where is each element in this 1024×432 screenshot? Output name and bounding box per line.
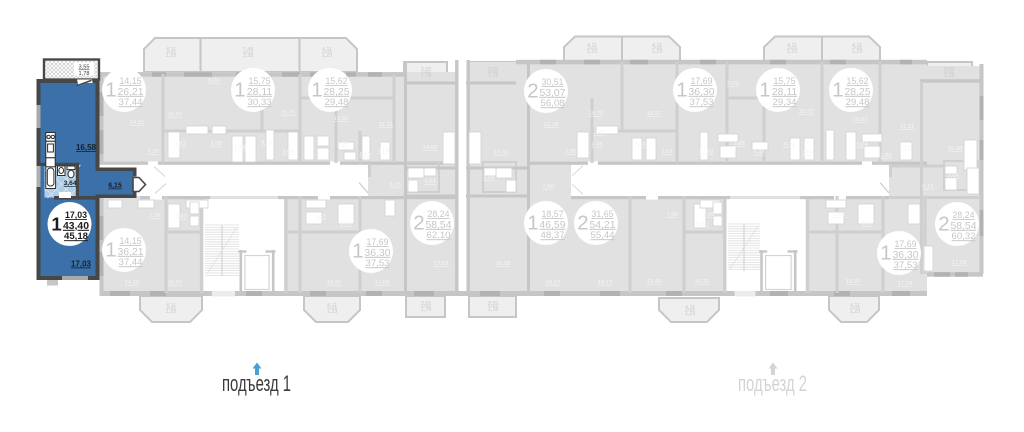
svg-text:3,64: 3,64: [947, 173, 959, 179]
svg-text:3,64: 3,64: [64, 180, 77, 187]
svg-text:10,97: 10,97: [327, 280, 342, 286]
svg-text:5,04: 5,04: [856, 142, 868, 148]
svg-text:17,69: 17,69: [894, 239, 916, 249]
svg-text:4,11: 4,11: [327, 303, 337, 309]
svg-text:15,75: 15,75: [799, 109, 814, 115]
svg-text:1: 1: [105, 239, 116, 262]
svg-text:1,85: 1,85: [880, 153, 892, 159]
svg-text:10,97: 10,97: [168, 280, 183, 286]
svg-text:1,78: 1,78: [944, 73, 955, 79]
svg-text:3,81: 3,81: [861, 221, 872, 227]
svg-text:37,44: 37,44: [118, 97, 143, 108]
svg-text:1,23: 1,23: [322, 53, 333, 59]
svg-text:1,23: 1,23: [685, 311, 696, 317]
svg-text:28,25: 28,25: [323, 87, 349, 98]
svg-text:1,40: 1,40: [696, 222, 708, 228]
svg-text:10,97: 10,97: [168, 112, 183, 118]
svg-text:4,11: 4,11: [166, 47, 176, 53]
svg-text:37,53: 37,53: [893, 260, 917, 271]
svg-text:1,78: 1,78: [421, 307, 432, 313]
svg-text:1,23: 1,23: [787, 49, 798, 55]
svg-text:3,88: 3,88: [733, 141, 745, 147]
svg-text:10,97: 10,97: [846, 279, 861, 285]
svg-text:36,30: 36,30: [688, 87, 714, 98]
svg-text:53,07: 53,07: [539, 88, 565, 99]
svg-text:3,55: 3,55: [488, 301, 499, 307]
svg-text:1: 1: [880, 242, 891, 265]
svg-text:60,32: 60,32: [951, 231, 975, 242]
svg-text:37,44: 37,44: [118, 257, 143, 268]
svg-text:2,08: 2,08: [899, 145, 911, 151]
svg-text:7,96: 7,96: [666, 212, 678, 218]
svg-text:17,03: 17,03: [494, 150, 509, 156]
svg-text:2,08: 2,08: [378, 148, 390, 154]
svg-text:18,17: 18,17: [598, 280, 613, 286]
svg-text:1,23: 1,23: [166, 53, 177, 59]
svg-text:55,44: 55,44: [590, 230, 615, 241]
svg-text:1: 1: [759, 79, 770, 102]
svg-text:36,30: 36,30: [364, 248, 390, 259]
svg-text:7,80: 7,80: [542, 184, 554, 190]
svg-text:16,58: 16,58: [948, 146, 963, 152]
svg-text:8,00: 8,00: [208, 78, 220, 84]
svg-text:3,83: 3,83: [833, 212, 845, 218]
svg-text:3,55: 3,55: [944, 67, 955, 73]
svg-text:10,75: 10,75: [695, 279, 710, 285]
svg-text:17,69: 17,69: [375, 280, 390, 286]
svg-text:1,23: 1,23: [652, 49, 663, 55]
svg-text:16,58: 16,58: [496, 261, 511, 267]
svg-text:3,64: 3,64: [424, 179, 436, 185]
svg-text:1: 1: [51, 214, 61, 235]
svg-text:26,21: 26,21: [117, 87, 143, 98]
svg-text:7,96: 7,96: [565, 149, 577, 155]
svg-text:3,83: 3,83: [174, 141, 186, 147]
svg-text:1,78: 1,78: [79, 71, 90, 77]
svg-text:3,83: 3,83: [634, 142, 646, 148]
svg-text:1,23: 1,23: [327, 309, 338, 315]
svg-text:15,75: 15,75: [248, 76, 270, 86]
svg-text:31,65: 31,65: [591, 209, 613, 219]
svg-text:1: 1: [234, 79, 245, 102]
svg-text:6,15: 6,15: [108, 183, 122, 190]
svg-text:16,58: 16,58: [76, 143, 97, 152]
svg-text:4,11: 4,11: [787, 43, 797, 49]
svg-text:30,33: 30,33: [247, 97, 271, 108]
svg-text:1,23: 1,23: [166, 309, 177, 315]
svg-text:10,75: 10,75: [589, 111, 604, 117]
svg-text:1: 1: [105, 79, 116, 102]
svg-text:18,57: 18,57: [546, 280, 561, 286]
svg-text:36,21: 36,21: [117, 247, 143, 258]
svg-text:2,45: 2,45: [591, 142, 603, 148]
svg-text:43,40: 43,40: [63, 221, 89, 232]
svg-text:17,69: 17,69: [690, 76, 712, 86]
svg-text:28,11: 28,11: [772, 87, 797, 98]
svg-text:7,26: 7,26: [147, 149, 159, 155]
svg-text:14,15: 14,15: [125, 280, 140, 286]
svg-text:5,04: 5,04: [337, 141, 349, 147]
svg-text:56,08: 56,08: [540, 98, 564, 109]
svg-text:3,55: 3,55: [79, 65, 90, 71]
svg-text:1: 1: [527, 212, 538, 235]
svg-text:1,85: 1,85: [359, 152, 371, 158]
svg-text:62,10: 62,10: [426, 230, 450, 241]
svg-text:4,11: 4,11: [852, 43, 862, 49]
svg-text:3,01: 3,01: [661, 149, 672, 155]
svg-text:17,69: 17,69: [898, 281, 913, 287]
svg-text:3,64: 3,64: [483, 175, 495, 181]
svg-text:30,51: 30,51: [541, 77, 563, 87]
svg-text:15,62: 15,62: [325, 76, 347, 86]
svg-text:29,48: 29,48: [324, 97, 348, 108]
svg-text:1,23: 1,23: [850, 309, 861, 315]
svg-text:7,49: 7,49: [243, 47, 254, 53]
svg-text:28,11: 28,11: [247, 87, 272, 98]
svg-text:7,26: 7,26: [149, 213, 161, 219]
svg-text:1,23: 1,23: [852, 49, 863, 55]
svg-text:29,34: 29,34: [772, 97, 797, 108]
svg-text:11,21: 11,21: [900, 124, 914, 130]
svg-text:14,15: 14,15: [119, 236, 141, 246]
svg-text:10,97: 10,97: [647, 111, 662, 117]
svg-text:18,57: 18,57: [541, 209, 563, 219]
svg-text:4,11: 4,11: [685, 305, 695, 311]
svg-text:3,55: 3,55: [421, 301, 432, 307]
svg-text:28,24: 28,24: [427, 209, 449, 219]
svg-text:4,11: 4,11: [587, 43, 597, 49]
svg-text:48,37: 48,37: [540, 230, 564, 241]
svg-text:1,78: 1,78: [488, 73, 499, 79]
svg-text:28,25: 28,25: [844, 87, 870, 98]
svg-text:14,15: 14,15: [119, 76, 141, 86]
svg-text:15,62: 15,62: [853, 117, 868, 123]
svg-text:13,45: 13,45: [647, 279, 662, 285]
svg-text:17,03: 17,03: [952, 260, 967, 266]
svg-text:13,18: 13,18: [544, 122, 559, 128]
svg-text:3,55: 3,55: [488, 67, 499, 73]
svg-text:3,64: 3,64: [282, 149, 294, 155]
svg-text:1,78: 1,78: [488, 307, 499, 313]
svg-text:17,03: 17,03: [65, 210, 87, 220]
svg-text:4,11: 4,11: [322, 47, 332, 53]
svg-text:1: 1: [832, 79, 843, 102]
svg-text:37,53: 37,53: [689, 97, 713, 108]
svg-text:11,21: 11,21: [379, 122, 393, 128]
svg-text:5,00: 5,00: [727, 81, 739, 87]
svg-text:1: 1: [676, 79, 687, 102]
svg-text:2: 2: [413, 212, 424, 235]
svg-text:2: 2: [527, 80, 538, 103]
svg-text:3,54: 3,54: [802, 150, 814, 156]
svg-text:3,48: 3,48: [234, 145, 246, 151]
svg-text:15,62: 15,62: [846, 76, 868, 86]
svg-text:14,58: 14,58: [423, 145, 438, 151]
svg-text:3,55: 3,55: [421, 67, 432, 73]
svg-text:3,83: 3,83: [314, 214, 326, 220]
svg-text:1,78: 1,78: [421, 73, 432, 79]
svg-text:14,15: 14,15: [130, 120, 145, 126]
svg-text:45,18: 45,18: [64, 231, 89, 242]
svg-text:28,24: 28,24: [952, 210, 974, 220]
svg-text:3,28: 3,28: [243, 53, 254, 59]
svg-text:1: 1: [311, 79, 322, 102]
svg-text:2,45: 2,45: [703, 212, 715, 218]
svg-text:3,88: 3,88: [210, 141, 222, 147]
svg-text:17,03: 17,03: [71, 260, 92, 269]
svg-text:29,48: 29,48: [845, 97, 869, 108]
svg-text:1: 1: [352, 240, 363, 263]
svg-text:17,69: 17,69: [699, 149, 714, 155]
svg-text:4,03: 4,03: [783, 142, 795, 148]
svg-text:4,11: 4,11: [166, 303, 176, 309]
svg-text:2: 2: [938, 213, 949, 236]
svg-text:36,30: 36,30: [892, 250, 918, 261]
svg-text:54,21: 54,21: [589, 220, 615, 231]
svg-text:58,54: 58,54: [950, 221, 976, 232]
svg-text:37,53: 37,53: [365, 258, 389, 269]
svg-text:4,03: 4,03: [261, 140, 273, 146]
svg-text:6,15: 6,15: [922, 184, 934, 190]
svg-text:46,59: 46,59: [539, 220, 565, 231]
svg-text:6,15: 6,15: [389, 182, 401, 188]
svg-text:3,81: 3,81: [340, 221, 351, 227]
svg-text:1,23: 1,23: [587, 49, 598, 55]
svg-text:1,40: 1,40: [593, 130, 605, 136]
svg-text:3,48: 3,48: [753, 150, 765, 156]
svg-text:4,11: 4,11: [850, 303, 860, 309]
svg-text:4,11: 4,11: [652, 43, 662, 49]
svg-text:15,75: 15,75: [773, 76, 795, 86]
svg-text:15,62: 15,62: [334, 116, 349, 122]
svg-text:2: 2: [577, 212, 588, 235]
svg-text:58,54: 58,54: [425, 220, 451, 231]
svg-text:17,03: 17,03: [434, 261, 449, 267]
svg-text:17,69: 17,69: [366, 237, 388, 247]
svg-text:15,75: 15,75: [281, 110, 296, 116]
svg-text:3,83: 3,83: [175, 214, 187, 220]
